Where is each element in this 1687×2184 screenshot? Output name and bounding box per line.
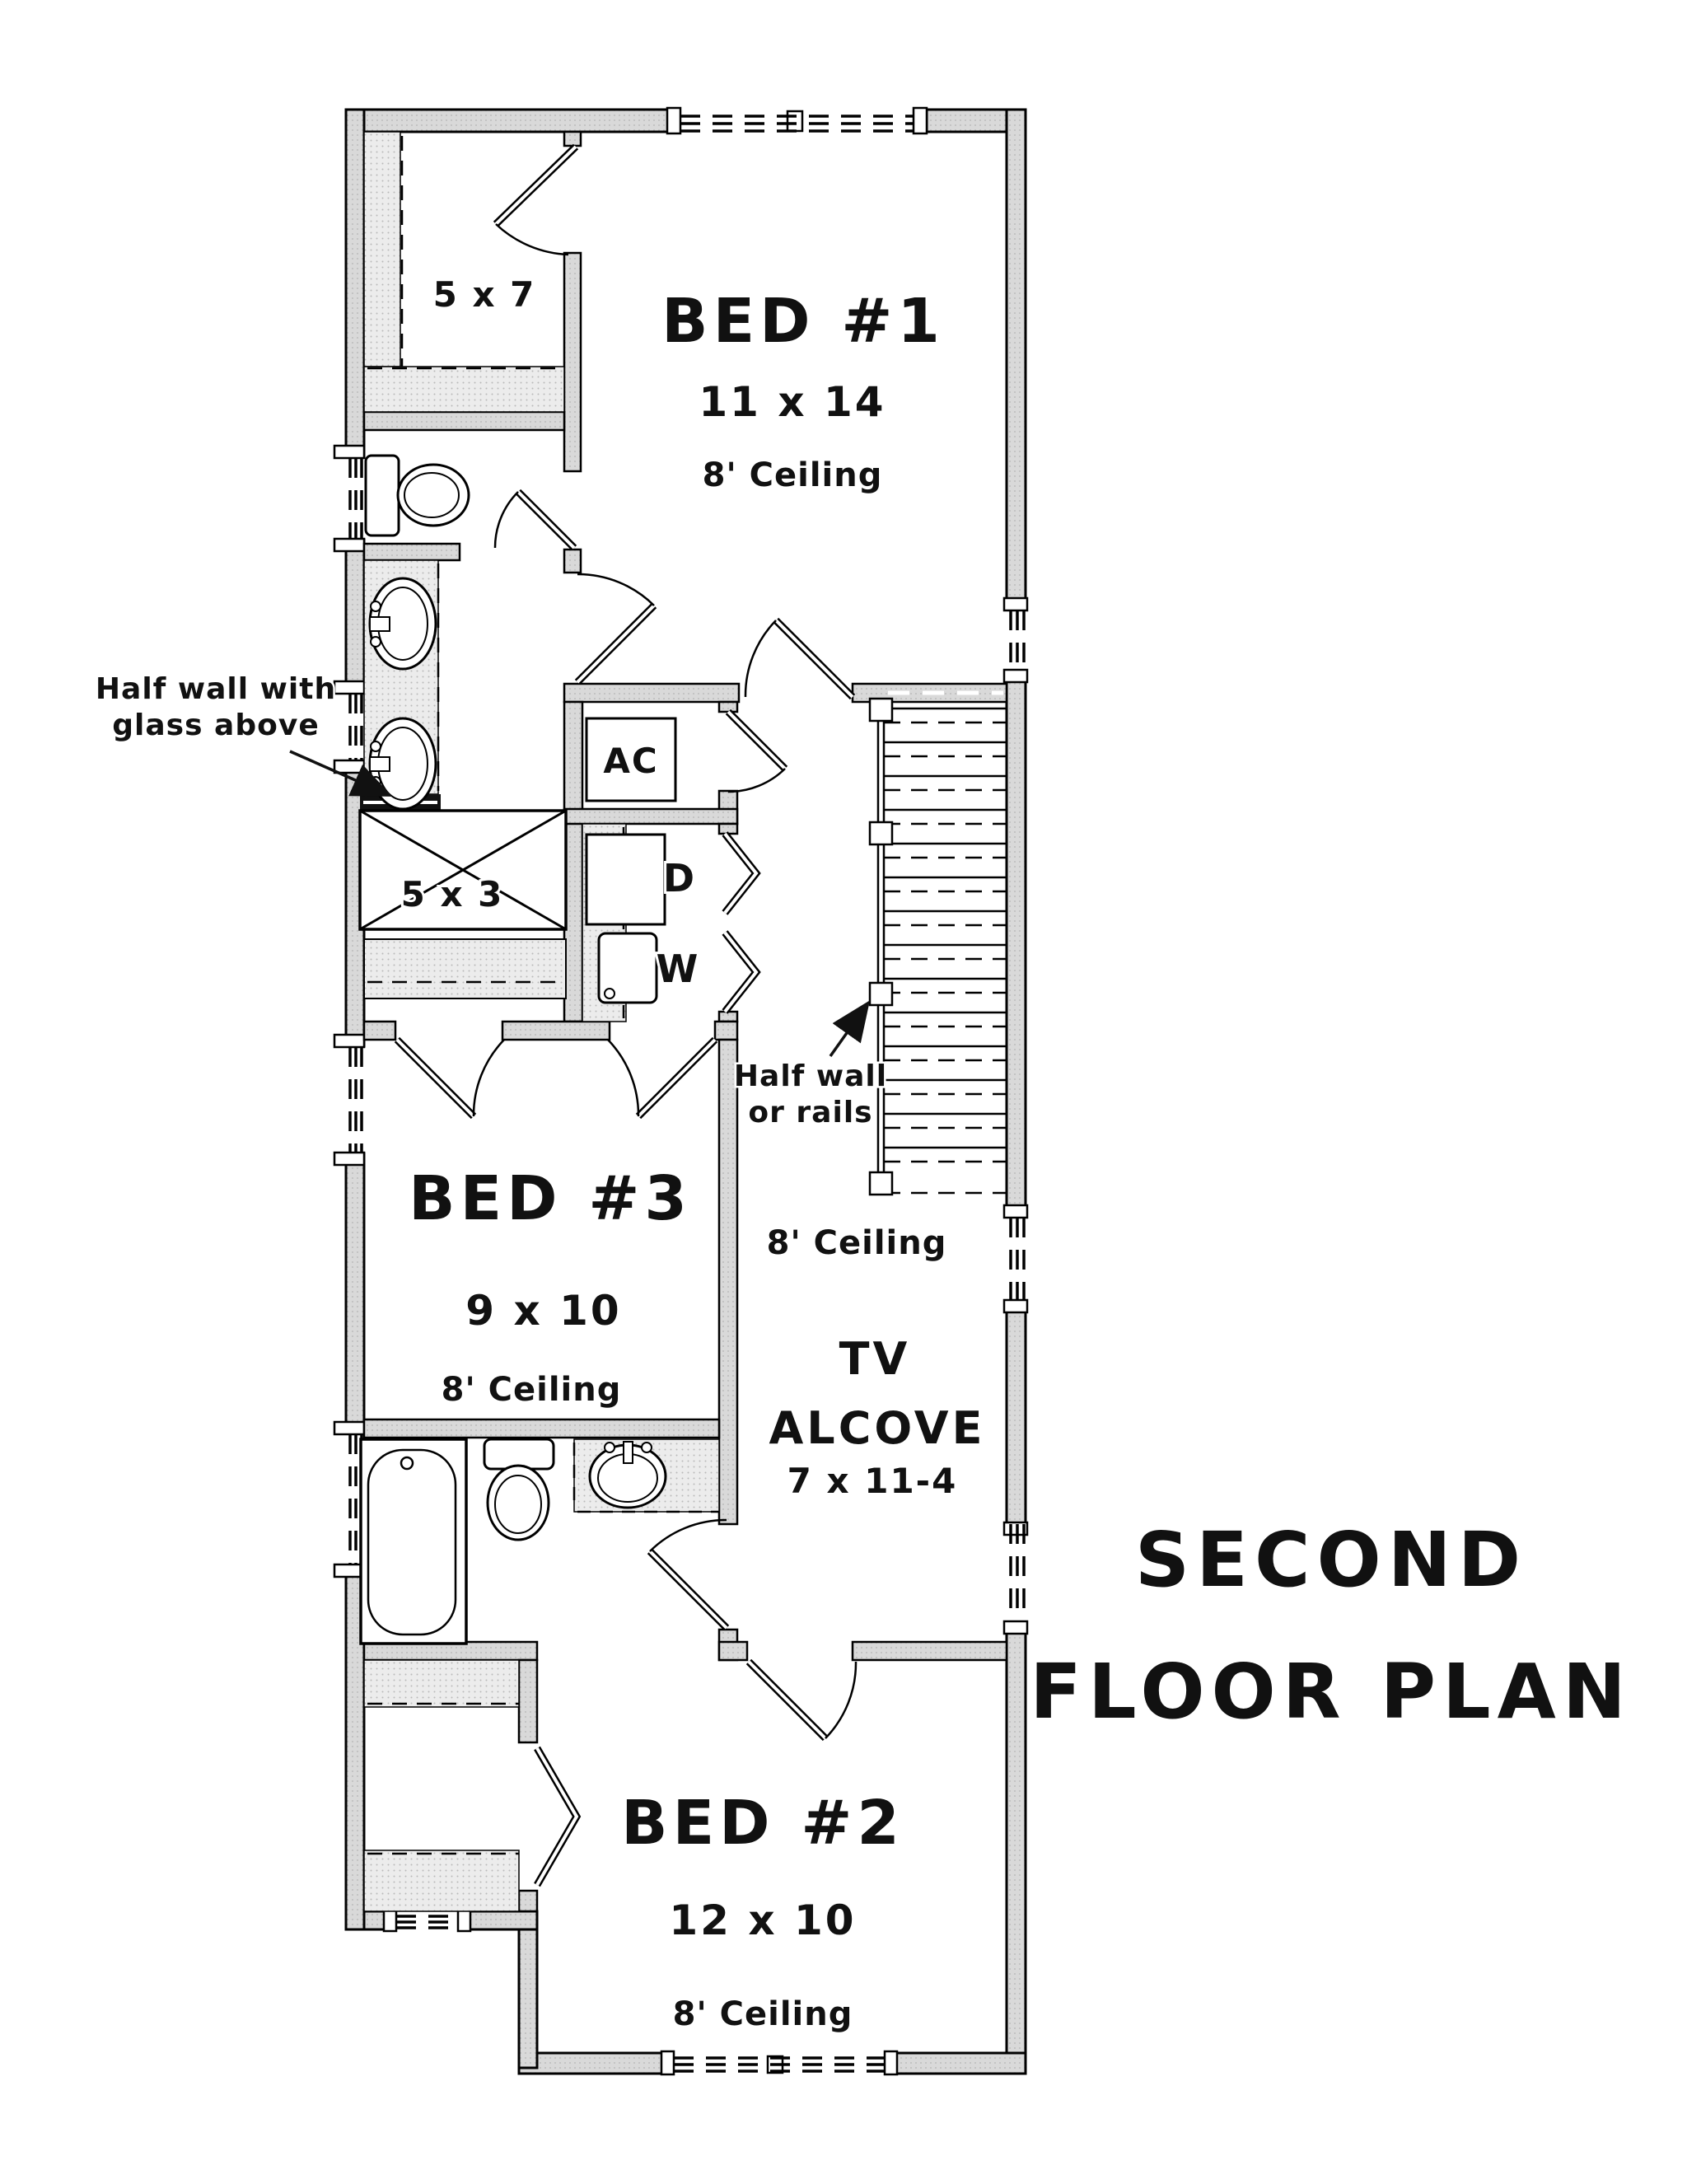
bed3-label: BED #3 <box>409 1163 692 1234</box>
closet-shelving <box>364 132 564 412</box>
half-wall-glass-line2: glass above <box>112 709 319 742</box>
plan-title-line2: FLOOR PLAN <box>1030 1648 1633 1736</box>
tv-alcove-line2: ALCOVE <box>769 1402 986 1454</box>
plan-title-line1: SECOND <box>1135 1516 1527 1604</box>
vanity-sink-2 <box>370 718 436 809</box>
linen-shelf <box>364 939 566 998</box>
toilet-lower <box>484 1439 554 1540</box>
shower-size: 5 x 3 <box>401 874 504 914</box>
bed3-ceiling: 8' Ceiling <box>442 1371 622 1409</box>
dryer <box>586 835 665 924</box>
staircase <box>870 699 1007 1195</box>
hall-ceiling: 8' Ceiling <box>767 1224 947 1262</box>
half-wall-rails-line1: Half wall <box>734 1059 887 1093</box>
walkin-closet-size: 5 x 7 <box>433 274 536 315</box>
tv-alcove-line1: TV <box>839 1333 911 1385</box>
washer <box>599 933 657 1003</box>
ac-label: AC <box>603 741 658 781</box>
stair-newel-posts <box>870 699 892 1195</box>
half-wall-glass-line1: Half wall with <box>96 672 336 706</box>
vanity-sink-1 <box>370 578 436 669</box>
bed2-label: BED #2 <box>621 1788 904 1859</box>
tv-alcove-size: 7 x 11-4 <box>787 1461 958 1501</box>
floor-plan-page: BED #1 11 x 14 8' Ceiling 5 x 7 Half wal… <box>0 0 1687 2184</box>
washer-label: W <box>657 947 699 991</box>
bed3-size: 9 x 10 <box>465 1287 621 1335</box>
bed2-size: 12 x 10 <box>669 1896 856 1944</box>
bed2-closet-shelving <box>364 1660 519 1911</box>
bed1-label: BED #1 <box>661 286 945 357</box>
toilet-upper <box>366 456 469 535</box>
bed2-ceiling: 8' Ceiling <box>673 1995 853 2033</box>
bed1-size: 11 x 14 <box>699 378 886 426</box>
bathtub <box>361 1439 466 1644</box>
dryer-label: D <box>663 856 694 900</box>
bed1-ceiling: 8' Ceiling <box>703 456 883 494</box>
second-floor-plan-drawing: BED #1 11 x 14 8' Ceiling 5 x 7 Half wal… <box>0 0 1687 2184</box>
half-wall-rails-line2: or rails <box>748 1096 872 1129</box>
